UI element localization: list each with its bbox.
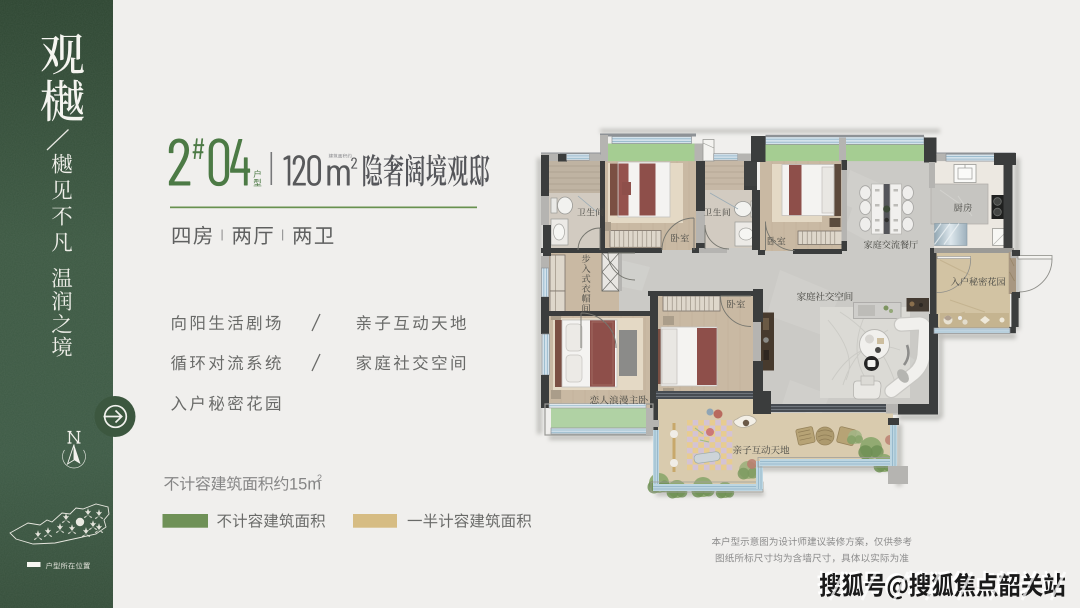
svg-text:2: 2 xyxy=(317,473,322,483)
